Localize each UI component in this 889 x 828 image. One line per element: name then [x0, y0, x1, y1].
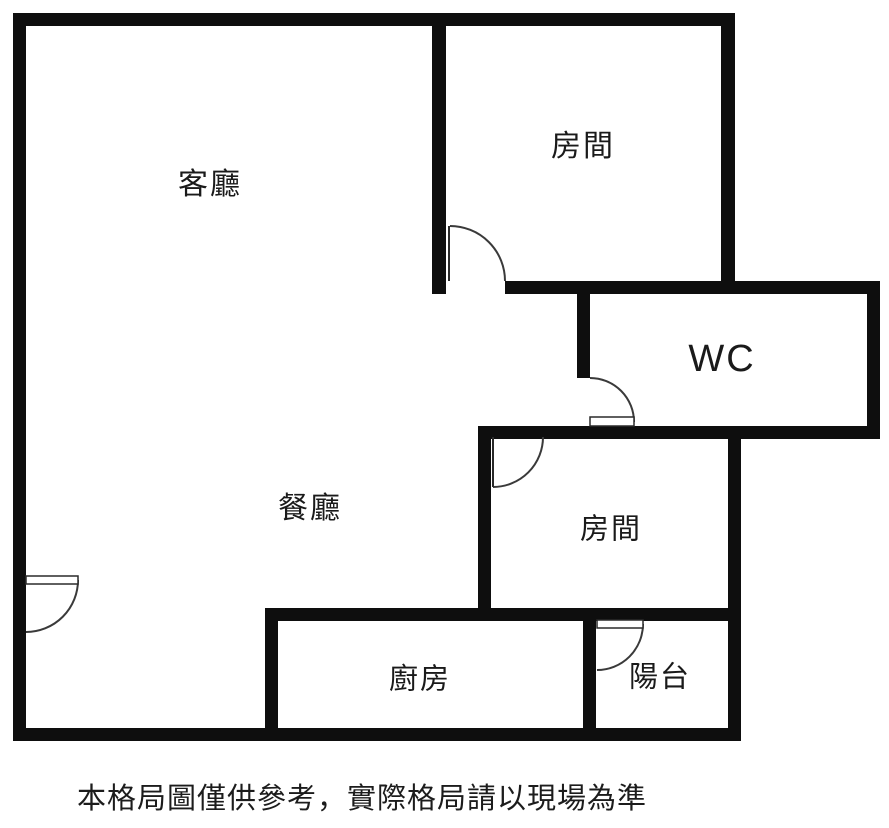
bedroom-middle-balcony-right-wall [728, 426, 741, 741]
floorplan: 客廳 房間 WC 餐廳 房間 廚房 陽台 本格局圖僅供參考，實際格局請以現場為準 [0, 0, 889, 828]
outer-left-wall [13, 13, 26, 741]
room-label-dining-room: 餐廳 [278, 494, 342, 524]
room-label-wc: WC [688, 340, 755, 378]
entrance-door-swing-arc [26, 580, 78, 632]
disclaimer-text: 本格局圖僅供參考，實際格局請以現場為準 [77, 784, 647, 816]
outer-right-wc-wall [867, 281, 880, 439]
wc-bottom-bedroom-middle-top-wall [478, 426, 880, 439]
wc-door-swing-arc [590, 378, 634, 422]
room-label-bedroom-top: 房間 [551, 132, 615, 162]
bedroom-top-left-wall [432, 13, 446, 294]
bedroom-middle-left-wall [478, 426, 491, 620]
entrance-door-panel [26, 576, 78, 584]
room-label-bedroom-middle: 房間 [580, 516, 642, 545]
kitchen-left-wall [265, 608, 278, 741]
balcony-left-wall [583, 608, 596, 741]
bedroom-bottom-wc-top-wall [505, 281, 880, 294]
bedroom-top-right-wall [721, 13, 735, 294]
outer-bottom-wall [13, 728, 741, 741]
outer-top-wall [13, 13, 735, 26]
room-label-living-room: 客廳 [178, 170, 242, 200]
bedroom-top-door-swing-arc [450, 226, 505, 281]
kitchen-top-bedroom-middle-bottom-wall [265, 608, 741, 621]
bedroom-middle-door-swing-arc [493, 437, 543, 487]
wc-left-wall [577, 281, 590, 378]
balcony-door-panel [597, 620, 643, 628]
room-label-kitchen: 廚房 [389, 666, 451, 695]
wc-door-panel [590, 417, 634, 426]
room-label-balcony: 陽台 [629, 664, 691, 693]
